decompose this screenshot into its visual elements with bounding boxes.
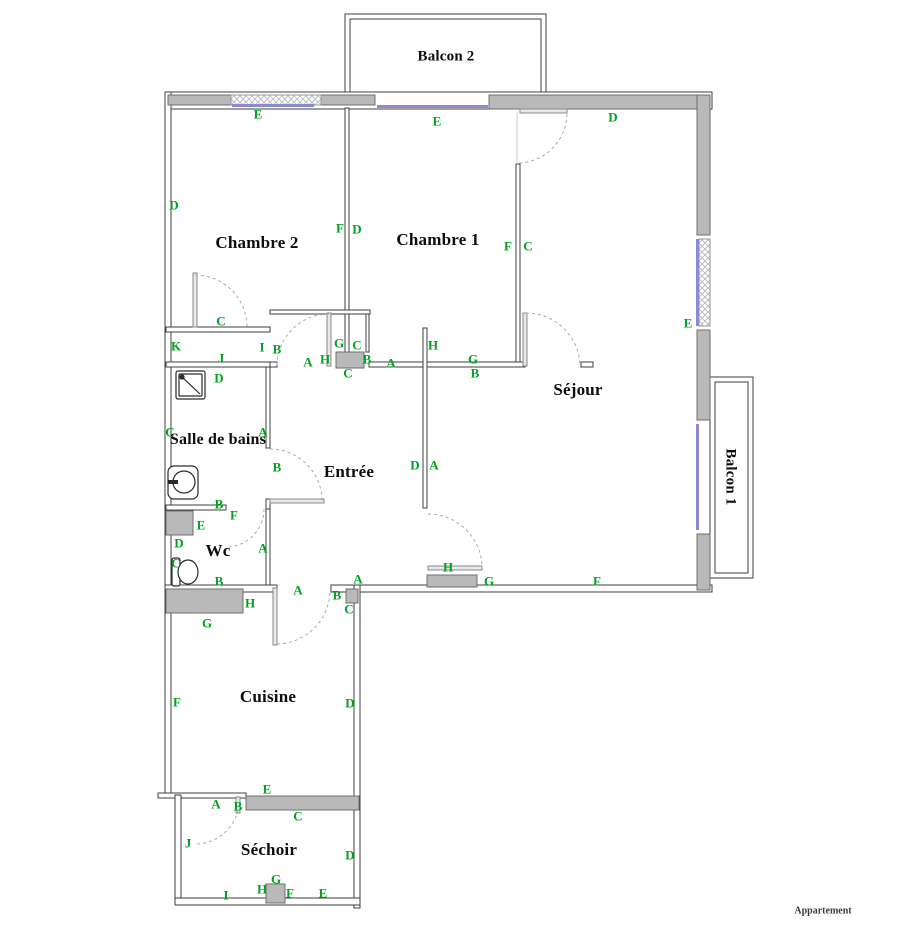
- shower-icon: [176, 371, 205, 399]
- door-leaf-sejour-top: [520, 109, 567, 113]
- wall-fills: [166, 95, 710, 903]
- door-leaf-chambre2: [193, 273, 197, 327]
- wall-seg: [697, 95, 710, 235]
- door-leaf-closet: [327, 313, 331, 366]
- door-arc-sechoir: [196, 810, 238, 844]
- door-arc-cuisine: [277, 590, 330, 644]
- window-chambre2: [231, 95, 321, 105]
- window-glass: [232, 104, 314, 107]
- kitchen-duct: [346, 589, 358, 603]
- toilet-icon: [172, 558, 198, 586]
- floorplan-drawing: [0, 0, 907, 927]
- door-leaf-bathroom: [270, 499, 324, 503]
- door-leaves: [193, 109, 567, 813]
- balcony2-door-glass: [377, 105, 488, 108]
- sejour-top-wall: [489, 95, 697, 109]
- door-leaf-cuisine: [273, 588, 277, 645]
- door-arc-sejour-top: [518, 114, 567, 163]
- floorplan: Balcon 2Chambre 2Chambre 1SéjourBalcon 1…: [0, 0, 907, 927]
- counter: [166, 589, 243, 613]
- balcony1-door-glass: [696, 424, 699, 530]
- wall-seg: [321, 95, 375, 105]
- sejour-radiator: [427, 575, 477, 587]
- door-leaf-chambre1: [523, 313, 527, 366]
- door-arc-closet: [277, 314, 329, 366]
- watermark: Appartement: [794, 906, 851, 917]
- sechoir-sill: [246, 796, 359, 810]
- door-arc-chambre2: [195, 275, 247, 327]
- hall-duct: [336, 352, 364, 368]
- door-arc-bathroom: [270, 449, 322, 501]
- wc-radiator: [166, 511, 193, 535]
- door-arcs: [195, 114, 580, 844]
- walls: [158, 14, 753, 908]
- wall-seg: [168, 95, 231, 105]
- window-glass: [696, 239, 699, 326]
- door-arc-chambre1: [526, 313, 580, 366]
- fixtures: [168, 371, 205, 586]
- door-arc-sejour: [428, 514, 482, 568]
- sechoir-vent: [266, 884, 285, 903]
- window-sejour: [699, 239, 710, 326]
- washbasin-icon: [168, 466, 198, 499]
- wall-seg: [697, 330, 710, 420]
- door-arc-wc: [226, 509, 264, 547]
- door-leaf-sejour: [428, 566, 482, 570]
- wall-seg: [697, 534, 710, 590]
